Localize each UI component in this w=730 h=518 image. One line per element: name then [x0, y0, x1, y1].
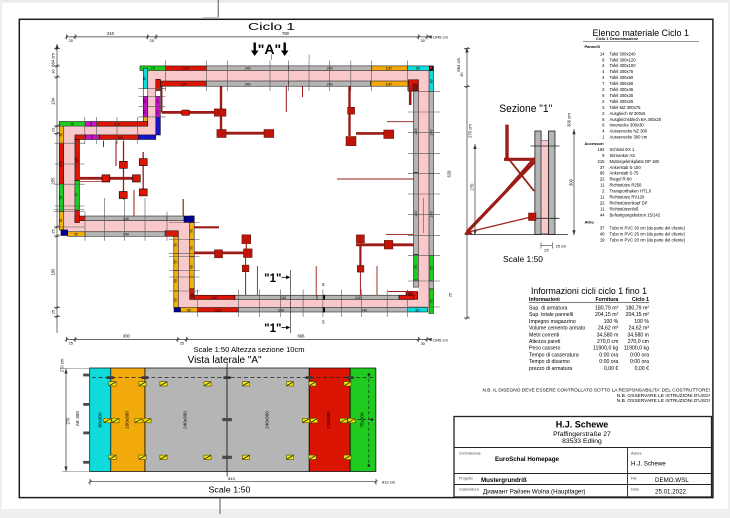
svg-text:120: 120: [117, 136, 123, 140]
svg-text:Tafel 300x25: Tafel 300x25: [610, 99, 634, 104]
svg-text:Innenecke 300x30: Innenecke 300x30: [610, 123, 645, 128]
svg-text:240x300: 240x300: [183, 411, 188, 429]
svg-text:270: 270: [469, 183, 474, 191]
svg-text:629: 629: [447, 170, 452, 178]
svg-text:100 %: 100 %: [604, 319, 619, 325]
svg-text:Metri correnti: Metri correnti: [529, 332, 559, 338]
svg-text:240: 240: [278, 308, 284, 312]
svg-text:Sup. totale pannelli: Sup. totale pannelli: [529, 312, 573, 318]
svg-text:Tempo di casseratura: Tempo di casseratura: [529, 352, 579, 358]
svg-text:100: 100: [143, 109, 147, 114]
svg-text:Tafel 300x75: Tafel 300x75: [610, 69, 634, 74]
svg-text:Informazioni cicli ciclo 1 fi: Informazioni cicli ciclo 1 fino 1: [531, 286, 647, 296]
svg-text:Ciclo 1: Ciclo 1: [632, 297, 649, 303]
svg-text:37: 37: [600, 226, 605, 231]
svg-text:Ausgleich W 300x5: Ausgleich W 300x5: [610, 111, 647, 116]
svg-text:Muttergelenkplatte DP 180: Muttergelenkplatte DP 180: [610, 159, 660, 164]
svg-text:11: 11: [600, 206, 605, 211]
svg-text:Scale 1:50 Altezza sezione 1: Scale 1:50 Altezza sezione 10cm: [194, 345, 305, 354]
svg-text:Commissione: Commissione: [459, 452, 481, 456]
svg-text:"1": "1": [264, 323, 281, 335]
svg-text:100: 100: [386, 67, 392, 71]
svg-text:60: 60: [189, 265, 193, 269]
svg-text:664 cm: 664 cm: [51, 53, 56, 67]
svg-text:1045 cm: 1045 cm: [433, 35, 449, 40]
svg-text:0,00 €: 0,00 €: [635, 366, 650, 372]
svg-text:75: 75: [429, 300, 433, 304]
svg-text:19: 19: [600, 238, 605, 243]
svg-text:810 cm: 810 cm: [382, 480, 396, 485]
svg-text:75: 75: [70, 122, 74, 126]
svg-text:Aussenecke NZ 300: Aussenecke NZ 300: [610, 129, 648, 134]
svg-text:44: 44: [600, 212, 605, 217]
svg-text:Altezza pareti: Altezza pareti: [529, 339, 560, 345]
svg-text:50: 50: [189, 229, 193, 233]
svg-text:H.J. Schewe: H.J. Schewe: [631, 461, 666, 468]
svg-text:50: 50: [174, 298, 178, 302]
svg-text:50: 50: [189, 246, 193, 250]
svg-text:Tafel 300x120: Tafel 300x120: [610, 57, 637, 62]
svg-text:34,580 m: 34,580 m: [597, 332, 619, 338]
svg-text:270 cm: 270 cm: [60, 358, 65, 372]
svg-text:180,79 m²: 180,79 m²: [626, 305, 650, 311]
svg-text:120: 120: [183, 67, 189, 71]
svg-text:Tafel 300x30: Tafel 300x30: [610, 93, 634, 98]
svg-text:22: 22: [600, 177, 605, 182]
svg-text:50: 50: [59, 219, 63, 223]
svg-text:180,79 m²: 180,79 m²: [595, 305, 619, 311]
svg-text:60: 60: [143, 76, 147, 80]
svg-text:270,0 cm: 270,0 cm: [628, 339, 649, 345]
svg-text:204,15 m²: 204,15 m²: [626, 312, 650, 318]
svg-text:Tubo in PVC 25 cm (da parte de: Tubo in PVC 25 cm (da parte del cliente): [610, 232, 686, 237]
svg-text:195: 195: [51, 268, 56, 276]
svg-text:25: 25: [180, 342, 184, 346]
svg-text:194: 194: [598, 147, 606, 152]
svg-text:Tafel 300x45: Tafel 300x45: [610, 87, 634, 92]
svg-text:300: 300: [123, 333, 131, 338]
svg-text:Vista laterale "A": Vista laterale "A": [188, 354, 262, 366]
svg-text:Tubo in PVC 30 cm (da parte de: Tubo in PVC 30 cm (da parte del cliente): [610, 226, 686, 231]
svg-text:Richtstütze RV120: Richtstütze RV120: [610, 195, 645, 200]
svg-text:66: 66: [600, 171, 605, 176]
svg-text:210: 210: [107, 31, 115, 36]
svg-text:Stirnanker AS: Stirnanker AS: [610, 153, 636, 158]
svg-text:Befestigungsbolzen 15/142: Befestigungsbolzen 15/142: [610, 212, 661, 217]
svg-text:Scale 1:50: Scale 1:50: [209, 486, 252, 495]
svg-text:Mustergrundriß: Mustergrundriß: [481, 477, 527, 484]
svg-text:120: 120: [181, 82, 187, 86]
svg-text:24,62 m³: 24,62 m³: [598, 326, 619, 332]
svg-text:30: 30: [421, 342, 425, 346]
svg-text:75x300: 75x300: [360, 412, 365, 428]
svg-text:100x300: 100x300: [125, 411, 130, 429]
svg-text:270 cm: 270 cm: [467, 124, 472, 138]
svg-text:Ankerstab S-75: Ankerstab S-75: [610, 171, 640, 176]
svg-text:204,15 m²: 204,15 m²: [595, 312, 619, 318]
svg-text:50: 50: [187, 308, 191, 312]
svg-text:File: File: [631, 477, 637, 481]
svg-text:120: 120: [75, 157, 79, 163]
svg-text:Accessori: Accessori: [585, 141, 604, 146]
svg-text:664 cm: 664 cm: [456, 57, 461, 71]
svg-text:75: 75: [429, 266, 433, 270]
svg-text:0:00 ora: 0:00 ora: [630, 359, 649, 365]
svg-text:Aussenecke 300 cm: Aussenecke 300 cm: [610, 135, 648, 140]
svg-text:Ciclo 1: Ciclo 1: [596, 37, 608, 41]
svg-text:Informazioni: Informazioni: [529, 297, 560, 303]
svg-text:75: 75: [414, 265, 418, 269]
svg-text:Sezione "1": Sezione "1": [499, 103, 552, 115]
svg-text:25: 25: [544, 248, 549, 253]
svg-text:Peso cassero: Peso cassero: [529, 346, 561, 352]
svg-text:30: 30: [421, 39, 425, 43]
svg-text:22: 22: [600, 200, 605, 205]
svg-text:"A": "A": [258, 41, 281, 57]
svg-text:24,62 m³: 24,62 m³: [629, 326, 650, 332]
svg-text:Pannelli: Pannelli: [585, 44, 600, 49]
svg-text:AE 300: AE 300: [75, 411, 80, 427]
svg-text:Volume cemento armato: Volume cemento armato: [529, 326, 585, 332]
svg-text:Ankerstab S-100: Ankerstab S-100: [610, 165, 642, 170]
svg-text:Richtstütze R250: Richtstütze R250: [610, 183, 643, 188]
svg-text:30: 30: [52, 69, 56, 73]
svg-text:Ausgleichsblech BA 300x20: Ausgleichsblech BA 300x20: [610, 117, 662, 122]
svg-text:666: 666: [298, 333, 306, 338]
svg-text:25: 25: [69, 342, 73, 346]
svg-text:"1": "1": [264, 273, 281, 285]
svg-text:50: 50: [174, 260, 178, 264]
svg-text:75: 75: [75, 193, 79, 197]
svg-text:240: 240: [280, 296, 286, 300]
svg-text:120: 120: [215, 308, 221, 312]
svg-text:40: 40: [600, 232, 605, 237]
svg-text:270: 270: [66, 417, 71, 425]
svg-text:Richtstützenfuß: Richtstützenfuß: [610, 206, 640, 211]
svg-text:20: 20: [52, 128, 56, 132]
svg-text:Fornitura: Fornitura: [596, 297, 619, 303]
svg-text:Schloss EX 1: Schloss EX 1: [610, 147, 636, 152]
svg-text:75: 75: [59, 196, 63, 200]
svg-text:prezzo di armatura: prezzo di armatura: [529, 366, 572, 372]
svg-text:37: 37: [600, 165, 605, 170]
svg-text:240x300: 240x300: [265, 411, 270, 429]
svg-text:100 %: 100 %: [634, 319, 649, 325]
svg-text:Transporthaken HT1.0: Transporthaken HT1.0: [610, 189, 652, 194]
svg-text:25: 25: [52, 229, 56, 233]
svg-text:Altro: Altro: [585, 219, 595, 224]
svg-text:240: 240: [361, 308, 367, 312]
svg-text:Denominazione: Denominazione: [610, 37, 638, 41]
svg-text:Tempo di disarmo: Tempo di disarmo: [529, 359, 570, 365]
svg-text:100: 100: [155, 99, 159, 104]
svg-text:810: 810: [228, 476, 235, 481]
svg-text:0:00 ora: 0:00 ora: [599, 352, 618, 358]
svg-text:100: 100: [143, 99, 147, 104]
svg-text:11: 11: [600, 195, 605, 200]
svg-text:760: 760: [282, 31, 290, 36]
svg-text:100: 100: [386, 82, 392, 86]
svg-text:60: 60: [416, 308, 420, 312]
svg-text:300: 300: [568, 178, 573, 186]
svg-text:11900,0 kg: 11900,0 kg: [624, 346, 649, 352]
svg-text:11: 11: [600, 183, 605, 188]
svg-text:0,00 €: 0,00 €: [604, 366, 619, 372]
svg-text:255: 255: [51, 177, 56, 185]
svg-text:83533 Edling: 83533 Edling: [562, 438, 602, 445]
svg-text:25.01.2022: 25.01.2022: [655, 489, 687, 496]
svg-text:30: 30: [460, 72, 464, 76]
svg-text:N.B. OSSERVARE LE ISTRUZIONI D: N.B. OSSERVARE LE ISTRUZIONI D'USO!: [617, 393, 710, 399]
svg-text:25: 25: [69, 39, 73, 43]
svg-text:60x300: 60x300: [98, 412, 103, 428]
svg-text:Tubo in PVC 20 cm (da parte de: Tubo in PVC 20 cm (da parte del cliente): [610, 238, 686, 243]
svg-text:Sup. di armatura: Sup. di armatura: [529, 305, 567, 311]
svg-text:Tafel 300x240: Tafel 300x240: [610, 51, 637, 56]
svg-text:Tafel 300x100: Tafel 300x100: [610, 63, 637, 68]
svg-text:Диамант Райзен Wolna (Hauptlag: Диамант Райзен Wolna (Hauptlager): [483, 489, 585, 496]
svg-text:100: 100: [155, 109, 159, 114]
svg-text:270,0 cm: 270,0 cm: [597, 339, 618, 345]
svg-text:Casseratura: Casseratura: [459, 488, 479, 492]
svg-text:Tafel 300x60: Tafel 300x60: [610, 75, 634, 80]
svg-text:Tafel 300x50: Tafel 300x50: [610, 81, 634, 86]
svg-text:34,580 m: 34,580 m: [627, 332, 649, 338]
svg-text:Pfaffingerstraße 27: Pfaffingerstraße 27: [553, 431, 611, 438]
svg-text:25: 25: [449, 293, 453, 297]
svg-text:240: 240: [123, 217, 129, 221]
svg-text:Tafel MZ 300x75: Tafel MZ 300x75: [610, 105, 642, 110]
svg-text:N.B. OSSERVARE LE ISTRUZIONI D: N.B. OSSERVARE LE ISTRUZIONI D'USO!: [617, 398, 710, 404]
svg-text:60: 60: [416, 67, 420, 71]
svg-text:60: 60: [174, 279, 178, 283]
svg-text:60: 60: [429, 79, 433, 83]
svg-text:N.B. IL DISEGNO DEVE ESSERE CO: N.B. IL DISEGNO DEVE ESSERE CONTROLLATO …: [483, 388, 711, 394]
svg-text:300 cm: 300 cm: [566, 113, 571, 127]
svg-text:120: 120: [211, 296, 217, 300]
svg-text:240: 240: [355, 296, 361, 300]
svg-text:75: 75: [151, 67, 155, 71]
svg-text:14: 14: [600, 51, 605, 56]
svg-text:Riegel R-80: Riegel R-80: [610, 177, 633, 182]
svg-text:50: 50: [75, 233, 79, 237]
svg-text:240: 240: [123, 233, 129, 237]
svg-text:215: 215: [598, 159, 606, 164]
svg-text:H.J. Schewe: H.J. Schewe: [556, 420, 609, 430]
svg-text:25 cm: 25 cm: [556, 244, 568, 249]
svg-text:240: 240: [414, 129, 418, 135]
svg-text:50: 50: [174, 243, 178, 247]
svg-text:0:00 ora: 0:00 ora: [630, 352, 649, 358]
svg-text:25: 25: [150, 39, 154, 43]
svg-text:11900,0 kg: 11900,0 kg: [593, 346, 618, 352]
svg-text:Richtstützenkopf DP: Richtstützenkopf DP: [610, 200, 648, 205]
svg-text:240: 240: [414, 211, 418, 217]
svg-text:0:00 ora: 0:00 ora: [599, 359, 618, 365]
svg-text:Autore: Autore: [631, 452, 642, 456]
svg-text:240: 240: [245, 82, 251, 86]
svg-text:25: 25: [52, 310, 56, 314]
svg-text:240: 240: [245, 67, 251, 71]
svg-text:Impegno magazzino: Impegno magazzino: [529, 319, 576, 325]
svg-text:EuroSchal Homepage: EuroSchal Homepage: [495, 456, 560, 463]
svg-text:DEMO.WSL: DEMO.WSL: [655, 477, 689, 484]
svg-text:Progetto: Progetto: [459, 477, 473, 481]
svg-text:120x300: 120x300: [326, 411, 331, 429]
svg-text:134: 134: [51, 97, 56, 105]
svg-text:120: 120: [59, 161, 63, 167]
svg-text:Data: Data: [631, 488, 639, 492]
svg-text:Scale 1:50: Scale 1:50: [503, 255, 544, 264]
svg-text:1045 cm: 1045 cm: [433, 337, 449, 342]
